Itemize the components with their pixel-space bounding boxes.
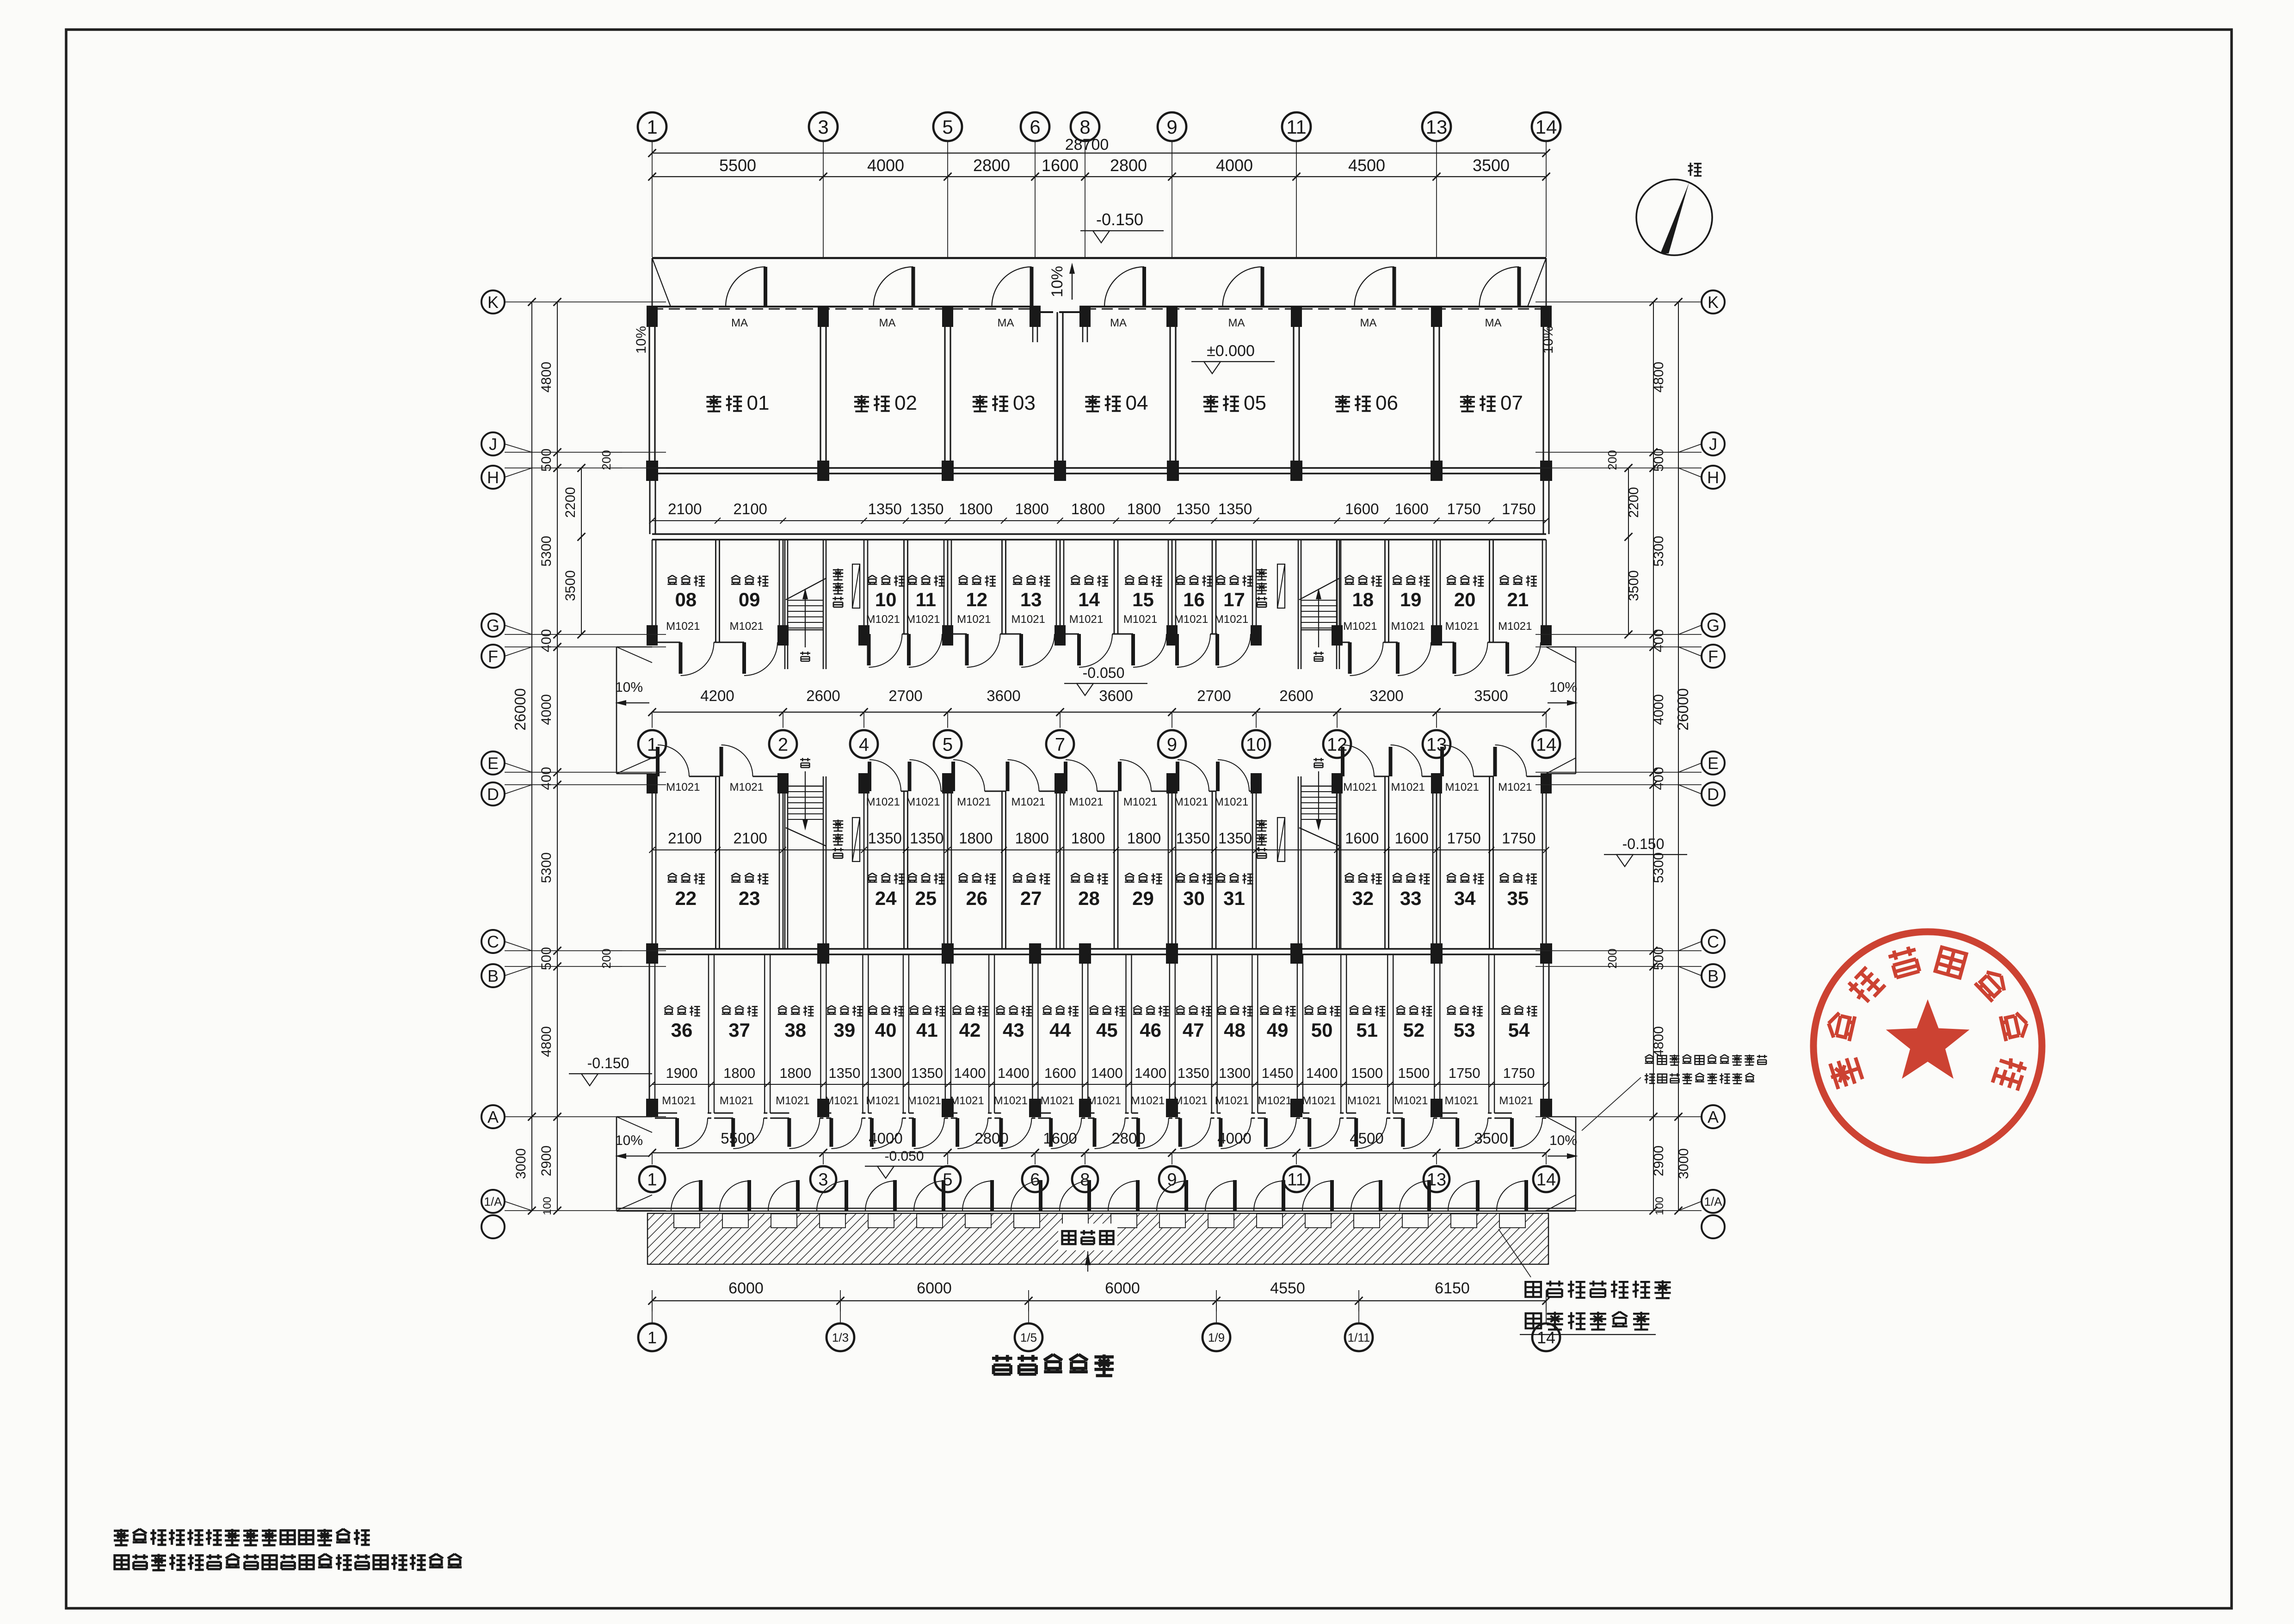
svg-text:37: 37 [728,1019,750,1041]
svg-text:2800: 2800 [1111,1130,1145,1147]
svg-text:2900: 2900 [1651,1145,1666,1176]
svg-text:M1021: M1021 [1174,613,1208,626]
svg-text:M1021: M1021 [666,781,700,794]
svg-text:32: 32 [1352,887,1374,909]
svg-text:MA: MA [1360,317,1377,329]
svg-text:1/11: 1/11 [1348,1330,1370,1344]
svg-text:4000: 4000 [1651,694,1666,725]
svg-text:11: 11 [1286,116,1307,138]
svg-text:5500: 5500 [719,156,756,175]
svg-text:1350: 1350 [1176,830,1210,847]
svg-text:M1021: M1021 [662,1095,696,1107]
svg-text:1350: 1350 [1218,500,1252,517]
svg-text:100: 100 [1653,1197,1666,1215]
svg-text:3500: 3500 [1474,1130,1508,1147]
svg-text:M1021: M1021 [866,613,900,626]
svg-text:44: 44 [1049,1019,1071,1041]
svg-text:1600: 1600 [1043,1130,1077,1147]
svg-text:45: 45 [1096,1019,1118,1041]
svg-text:2100: 2100 [668,830,702,847]
svg-text:M1021: M1021 [1131,1095,1165,1107]
svg-text:C: C [1707,932,1719,951]
svg-text:51: 51 [1356,1019,1378,1041]
svg-text:6000: 6000 [1105,1280,1140,1297]
svg-text:F: F [488,647,498,666]
svg-text:M1021: M1021 [1069,796,1103,808]
svg-text:4000: 4000 [1216,156,1253,175]
svg-text:11: 11 [916,589,936,610]
svg-text:14: 14 [1535,116,1557,138]
svg-text:M1021: M1021 [866,796,900,808]
svg-text:G: G [1707,616,1720,635]
svg-text:-0.050: -0.050 [884,1149,924,1164]
svg-text:08: 08 [675,589,697,610]
svg-text:1350: 1350 [868,830,901,847]
svg-text:10: 10 [1246,734,1267,755]
svg-text:1/A: 1/A [484,1194,502,1208]
svg-text:A: A [487,1107,499,1126]
svg-text:M1021: M1021 [1391,781,1425,794]
svg-text:2600: 2600 [806,687,840,704]
svg-text:3200: 3200 [1369,687,1403,704]
svg-text:M1021: M1021 [1445,1095,1479,1107]
svg-text:6: 6 [1030,116,1040,138]
svg-text:22: 22 [675,887,697,909]
svg-text:20: 20 [1454,589,1476,610]
svg-text:1750: 1750 [1503,1065,1535,1081]
svg-text:4800: 4800 [539,362,554,393]
svg-text:M1021: M1021 [1498,781,1532,794]
svg-text:1: 1 [647,734,657,755]
svg-text:33: 33 [1400,887,1422,909]
svg-text:1800: 1800 [1071,500,1105,517]
svg-text:500: 500 [539,947,554,970]
svg-text:M1021: M1021 [1215,1095,1249,1107]
svg-text:4550: 4550 [1270,1280,1305,1297]
svg-text:13: 13 [1426,116,1448,138]
svg-text:4: 4 [859,734,869,755]
svg-text:26000: 26000 [512,688,529,731]
svg-text:400: 400 [539,767,554,790]
svg-text:5: 5 [942,116,953,138]
svg-text:9: 9 [1167,734,1177,755]
svg-text:3500: 3500 [1626,570,1641,601]
svg-text:26: 26 [966,887,987,909]
svg-text:M1021: M1021 [1087,1095,1121,1107]
svg-text:M1021: M1021 [1302,1095,1336,1107]
svg-text:M1021: M1021 [1394,1095,1428,1107]
svg-text:1600: 1600 [1042,156,1079,175]
svg-text:H: H [1707,468,1719,487]
svg-text:1600: 1600 [1345,500,1379,517]
svg-text:1800: 1800 [1015,830,1048,847]
svg-text:1900: 1900 [666,1065,698,1081]
svg-text:48: 48 [1224,1019,1246,1041]
svg-text:1350: 1350 [868,500,901,517]
svg-text:2: 2 [778,734,788,755]
svg-text:04: 04 [1126,392,1148,414]
svg-text:1400: 1400 [998,1065,1030,1081]
svg-text:42: 42 [959,1019,981,1041]
svg-text:400: 400 [539,629,554,652]
svg-text:M1021: M1021 [666,620,700,633]
svg-text:F: F [1708,647,1718,666]
svg-text:10%: 10% [1048,266,1066,297]
svg-text:M1021: M1021 [1215,796,1248,808]
svg-text:1800: 1800 [779,1065,811,1081]
svg-text:52: 52 [1403,1019,1424,1041]
svg-text:1750: 1750 [1502,830,1535,847]
svg-text:D: D [1707,785,1719,804]
svg-text:M1021: M1021 [1499,1095,1533,1107]
svg-text:6000: 6000 [728,1280,764,1297]
svg-text:1: 1 [647,1170,657,1190]
svg-text:K: K [1708,293,1719,312]
svg-text:4500: 4500 [1350,1130,1383,1147]
svg-text:3500: 3500 [1474,687,1508,704]
svg-text:100: 100 [541,1197,554,1215]
svg-text:1300: 1300 [1219,1065,1251,1081]
svg-text:1350: 1350 [911,1065,943,1081]
svg-text:1600: 1600 [1345,830,1379,847]
svg-text:2800: 2800 [1110,156,1147,175]
svg-text:1800: 1800 [959,500,993,517]
svg-text:36: 36 [671,1019,693,1041]
svg-text:2700: 2700 [1197,687,1231,704]
svg-text:6000: 6000 [917,1280,952,1297]
svg-text:M1021: M1021 [994,1095,1028,1107]
svg-text:41: 41 [916,1019,938,1041]
svg-text:1800: 1800 [1127,500,1161,517]
svg-text:1350: 1350 [1218,830,1252,847]
svg-text:M1021: M1021 [957,613,991,626]
svg-text:M1021: M1021 [866,1095,900,1107]
svg-text:24: 24 [875,887,897,909]
svg-text:M1021: M1021 [907,1095,941,1107]
svg-text:-0.050: -0.050 [1083,664,1125,681]
svg-text:5300: 5300 [1651,536,1666,567]
svg-text:M1021: M1021 [906,796,940,808]
svg-text:19: 19 [1400,589,1422,610]
svg-text:MA: MA [1228,317,1245,329]
svg-text:2800: 2800 [973,156,1010,175]
svg-text:12: 12 [966,589,987,610]
svg-text:4000: 4000 [869,1130,902,1147]
svg-text:1800: 1800 [1071,830,1105,847]
svg-text:1800: 1800 [1015,500,1048,517]
svg-text:1/A: 1/A [1704,1194,1722,1208]
svg-text:1800: 1800 [723,1065,755,1081]
svg-text:10%: 10% [615,1133,643,1148]
svg-text:H: H [487,468,499,487]
svg-text:14: 14 [1078,589,1100,610]
svg-text:1750: 1750 [1447,500,1480,517]
svg-text:05: 05 [1244,392,1266,414]
svg-text:1400: 1400 [1135,1065,1166,1081]
svg-text:400: 400 [1651,767,1666,790]
svg-text:2200: 2200 [563,487,578,518]
svg-text:4000: 4000 [1217,1130,1251,1147]
svg-text:17: 17 [1223,589,1245,610]
svg-text:G: G [487,616,499,635]
svg-text:29: 29 [1132,887,1154,909]
svg-text:25: 25 [915,887,937,909]
svg-text:1800: 1800 [959,830,993,847]
svg-text:4000: 4000 [867,156,904,175]
svg-text:3000: 3000 [1676,1148,1691,1179]
svg-text:200: 200 [599,948,613,968]
svg-text:3: 3 [818,116,828,138]
svg-text:8: 8 [1079,116,1090,138]
svg-text:M1021: M1021 [720,1095,753,1107]
svg-text:1: 1 [647,1328,657,1347]
svg-text:±0.000: ±0.000 [1207,342,1255,360]
svg-text:1500: 1500 [1351,1065,1383,1081]
svg-text:MA: MA [731,317,748,329]
svg-text:1600: 1600 [1394,830,1428,847]
svg-text:30: 30 [1183,887,1205,909]
svg-text:4200: 4200 [700,687,734,704]
svg-text:2100: 2100 [733,500,767,517]
svg-text:5300: 5300 [1651,852,1666,883]
svg-text:1400: 1400 [1091,1065,1123,1081]
svg-text:M1021: M1021 [1123,613,1157,626]
svg-text:2200: 2200 [1626,487,1641,518]
svg-text:E: E [487,754,499,773]
svg-text:1/3: 1/3 [832,1330,849,1344]
svg-text:M1021: M1021 [950,1095,984,1107]
svg-text:MA: MA [998,317,1014,329]
svg-text:C: C [487,932,499,951]
svg-text:27: 27 [1020,887,1042,909]
svg-text:J: J [489,435,497,454]
svg-text:-0.150: -0.150 [1096,210,1143,229]
svg-text:21: 21 [1507,589,1529,610]
svg-text:02: 02 [894,392,917,414]
svg-text:1750: 1750 [1449,1065,1480,1081]
svg-text:M1021: M1021 [1343,781,1377,794]
svg-text:1350: 1350 [910,500,943,517]
svg-text:11: 11 [1287,1170,1305,1190]
svg-text:28700: 28700 [1065,136,1109,154]
svg-text:200: 200 [1605,948,1619,968]
svg-text:M1021: M1021 [1011,613,1045,626]
svg-text:1: 1 [647,116,657,138]
svg-text:38: 38 [784,1019,806,1041]
svg-text:13: 13 [1020,589,1042,610]
svg-text:7: 7 [1055,734,1065,755]
svg-text:07: 07 [1500,392,1523,414]
svg-text:500: 500 [1651,449,1666,472]
svg-text:M1021: M1021 [906,613,940,626]
svg-text:1400: 1400 [1306,1065,1338,1081]
svg-text:46: 46 [1140,1019,1161,1041]
svg-text:4000: 4000 [539,694,554,725]
svg-text:1750: 1750 [1447,830,1480,847]
svg-text:1500: 1500 [1398,1065,1430,1081]
svg-text:1450: 1450 [1262,1065,1294,1081]
svg-text:14: 14 [1536,734,1557,755]
svg-text:54: 54 [1508,1019,1530,1041]
svg-text:M1021: M1021 [957,796,991,808]
svg-text:14: 14 [1536,1170,1556,1190]
svg-text:28: 28 [1078,887,1100,909]
svg-text:3: 3 [818,1170,828,1190]
svg-text:34: 34 [1454,887,1476,909]
svg-text:2100: 2100 [668,500,702,517]
svg-text:14: 14 [1537,1328,1555,1347]
svg-text:23: 23 [739,887,760,909]
svg-text:M1021: M1021 [1258,1095,1291,1107]
svg-text:2900: 2900 [539,1145,554,1176]
svg-text:4800: 4800 [539,1026,554,1057]
svg-text:3600: 3600 [1099,687,1133,704]
svg-text:500: 500 [539,449,554,472]
svg-text:M1021: M1021 [1347,1095,1381,1107]
svg-text:01: 01 [747,392,770,414]
svg-text:50: 50 [1311,1019,1333,1041]
svg-text:500: 500 [1651,947,1666,970]
svg-text:2600: 2600 [1279,687,1313,704]
svg-text:-0.150: -0.150 [587,1055,629,1071]
svg-text:1350: 1350 [1176,500,1210,517]
svg-text:5500: 5500 [721,1130,754,1147]
svg-text:53: 53 [1454,1019,1475,1041]
svg-text:200: 200 [1605,450,1619,470]
svg-text:18: 18 [1352,589,1374,610]
svg-text:26000: 26000 [1674,688,1691,731]
svg-text:-0.150: -0.150 [1622,836,1665,852]
svg-text:3000: 3000 [513,1148,529,1179]
svg-text:M1021: M1021 [1011,796,1045,808]
svg-text:1/9: 1/9 [1208,1330,1225,1344]
svg-text:2700: 2700 [888,687,922,704]
svg-text:1800: 1800 [1127,830,1161,847]
svg-text:M1021: M1021 [825,1095,858,1107]
svg-text:M1021: M1021 [730,620,764,633]
svg-text:40: 40 [875,1019,897,1041]
svg-text:1600: 1600 [1044,1065,1076,1081]
svg-text:1/5: 1/5 [1020,1330,1037,1344]
svg-text:6: 6 [1030,1170,1040,1190]
svg-text:M1021: M1021 [1445,620,1479,633]
svg-text:M1021: M1021 [1391,620,1425,633]
svg-text:M1021: M1021 [1343,620,1377,633]
svg-text:06: 06 [1375,392,1398,414]
svg-text:1300: 1300 [870,1065,902,1081]
svg-text:43: 43 [1003,1019,1024,1041]
svg-text:M1021: M1021 [1174,1095,1208,1107]
svg-text:K: K [487,293,499,312]
svg-text:09: 09 [739,589,760,610]
svg-text:49: 49 [1267,1019,1289,1041]
svg-text:47: 47 [1183,1019,1204,1041]
svg-text:4800: 4800 [1651,1026,1666,1057]
svg-text:2800: 2800 [974,1130,1008,1147]
svg-text:9: 9 [1166,116,1177,138]
svg-text:5: 5 [943,734,953,755]
svg-text:M1021: M1021 [1498,620,1532,633]
svg-text:1350: 1350 [828,1065,860,1081]
svg-text:16: 16 [1183,589,1205,610]
svg-text:MA: MA [1485,317,1502,329]
svg-text:10: 10 [875,589,897,610]
svg-text:1350: 1350 [1178,1065,1209,1081]
svg-text:D: D [487,785,499,804]
svg-text:3600: 3600 [987,687,1020,704]
svg-text:200: 200 [599,450,613,470]
svg-text:4500: 4500 [1348,156,1385,175]
svg-text:10%: 10% [615,680,643,695]
svg-text:M1021: M1021 [1174,796,1208,808]
svg-text:M1021: M1021 [1445,781,1479,794]
svg-text:15: 15 [1132,589,1154,610]
svg-text:5300: 5300 [539,536,554,567]
svg-text:J: J [1709,435,1717,454]
svg-text:M1021: M1021 [1123,796,1157,808]
svg-text:3500: 3500 [563,570,578,601]
svg-text:31: 31 [1223,887,1245,909]
svg-text:39: 39 [834,1019,856,1041]
svg-text:400: 400 [1651,629,1666,652]
svg-text:2100: 2100 [733,830,767,847]
svg-text:6150: 6150 [1435,1280,1470,1297]
svg-text:1400: 1400 [954,1065,986,1081]
svg-text:35: 35 [1507,887,1529,909]
svg-text:M1021: M1021 [776,1095,809,1107]
svg-text:1600: 1600 [1394,500,1428,517]
svg-text:10%: 10% [634,326,649,354]
svg-text:M1021: M1021 [1215,613,1248,626]
svg-text:1750: 1750 [1502,500,1535,517]
svg-text:03: 03 [1013,392,1036,414]
svg-text:B: B [487,966,499,985]
svg-text:10%: 10% [1549,680,1577,695]
svg-text:4800: 4800 [1651,362,1666,393]
svg-text:1350: 1350 [910,830,943,847]
svg-text:M1021: M1021 [1041,1095,1074,1107]
svg-text:B: B [1708,966,1719,985]
svg-text:10%: 10% [1549,1133,1577,1148]
svg-text:E: E [1708,754,1719,773]
svg-text:M1021: M1021 [1069,613,1103,626]
svg-text:3500: 3500 [1473,156,1510,175]
svg-text:MA: MA [1110,317,1127,329]
svg-text:M1021: M1021 [730,781,764,794]
svg-text:MA: MA [879,317,896,329]
svg-text:A: A [1708,1107,1719,1126]
svg-text:5300: 5300 [539,852,554,883]
